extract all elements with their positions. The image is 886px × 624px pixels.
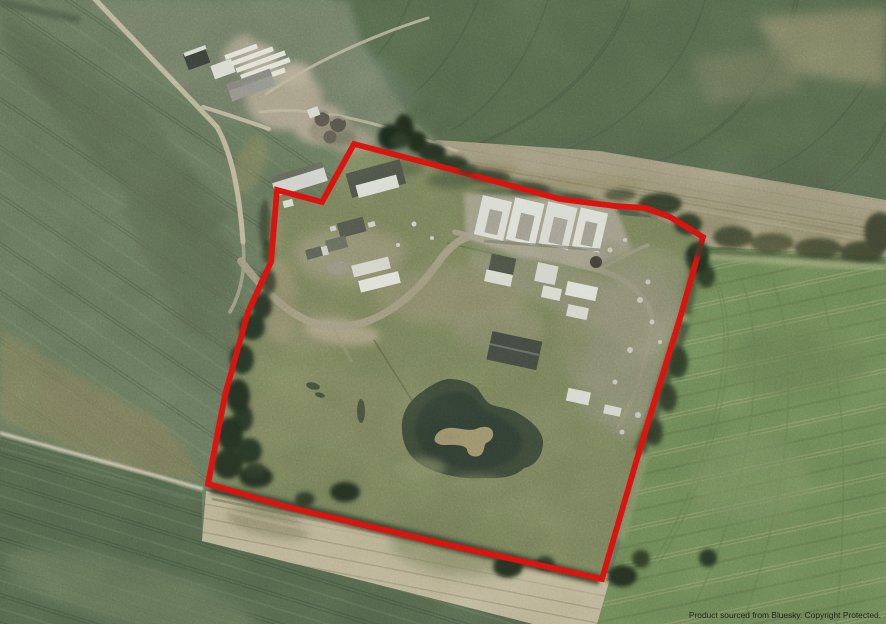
svg-text:Product sourced from Bluesky.: Product sourced from Bluesky. Copyright … [689,610,881,620]
